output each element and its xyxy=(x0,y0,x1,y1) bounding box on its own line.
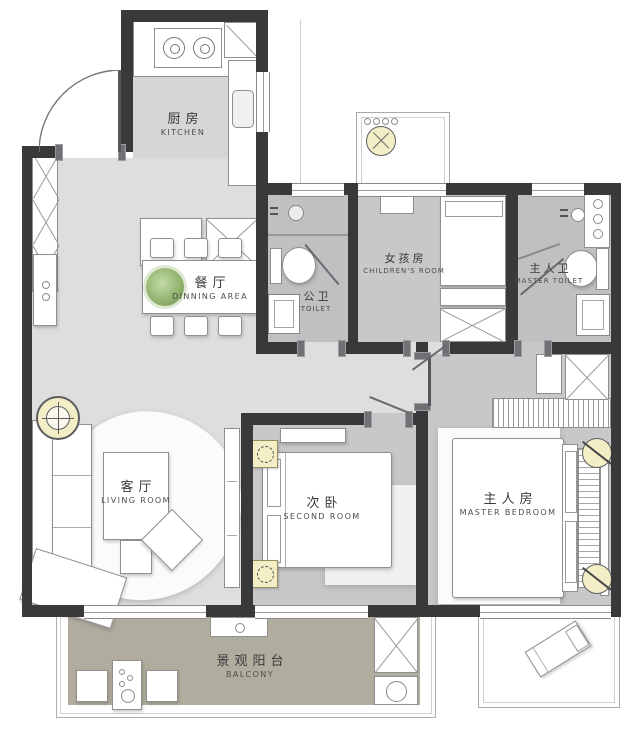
balcony-label: 景观阳台 BALCONY xyxy=(211,650,288,679)
door-opening xyxy=(518,342,546,354)
door-jamb xyxy=(403,340,411,357)
toilet-label: 公卫 TOILET xyxy=(301,288,332,313)
balcony-label-zh: 景观阳台 xyxy=(211,650,288,669)
door-jamb xyxy=(442,340,450,357)
slat-line xyxy=(533,648,549,672)
washbasin xyxy=(576,294,610,336)
laundry-cabinet xyxy=(374,617,418,673)
washbasin xyxy=(268,294,300,334)
x-pattern-line xyxy=(566,353,610,399)
living-balcony-window xyxy=(84,605,206,619)
bedside-lamp xyxy=(582,438,612,468)
balcony-stool xyxy=(146,670,178,702)
toilet-tank xyxy=(596,248,609,290)
closet-shelf xyxy=(536,354,562,394)
dining-chair xyxy=(184,238,208,258)
living-room-label: 客厅 LIVING ROOM xyxy=(101,476,171,505)
pillow-band xyxy=(562,444,578,592)
wall xyxy=(358,342,408,354)
cushion-line xyxy=(53,475,91,476)
planter-box xyxy=(210,617,268,637)
toilet-label-en: TOILET xyxy=(301,305,332,313)
decor-dot xyxy=(235,623,245,633)
kitchen-label-zh: 厨房 xyxy=(161,108,205,127)
wall xyxy=(435,605,480,617)
door-jamb xyxy=(338,340,346,357)
wall xyxy=(22,146,32,617)
children-bay-opening xyxy=(358,183,446,197)
burner-icon xyxy=(163,37,185,59)
teapot-icon xyxy=(121,689,135,703)
wall xyxy=(348,183,358,354)
pillow xyxy=(267,515,281,563)
dining-chair xyxy=(218,316,242,336)
wall xyxy=(611,183,621,617)
bedroom-bench xyxy=(280,428,346,443)
door-jamb xyxy=(514,340,522,357)
x-pattern-line xyxy=(375,616,420,673)
lamp-line xyxy=(58,402,59,434)
door-jamb xyxy=(405,411,413,428)
door-opening xyxy=(368,413,408,425)
closet-cabinet xyxy=(565,354,609,400)
wall xyxy=(256,183,268,354)
teacup-icon xyxy=(119,681,125,687)
wall xyxy=(444,342,506,354)
second-room-window xyxy=(255,605,368,619)
door-jamb xyxy=(297,340,305,357)
kitchen-label: 厨房 KITCHEN xyxy=(161,108,205,137)
tea-table xyxy=(112,660,142,710)
kitchen-window xyxy=(256,72,270,132)
wall xyxy=(22,605,84,617)
master-wardrobe xyxy=(492,398,611,428)
decor-dot xyxy=(391,118,398,125)
nightstand-lamp xyxy=(252,560,278,588)
bed-blanket xyxy=(440,288,506,306)
fold-line xyxy=(226,25,257,57)
entry-door-arc xyxy=(39,70,121,152)
toilet-tank xyxy=(270,248,282,284)
single-bed xyxy=(440,196,506,286)
dining-chair xyxy=(150,238,174,258)
decor-dot xyxy=(373,118,380,125)
floor-plan: 厨房 KITCHEN 餐厅 DINNING AREA 公卫 TOILET 女孩房… xyxy=(0,0,643,732)
kitchen-sink xyxy=(232,90,254,128)
faucet-icon xyxy=(560,209,568,211)
teacup-icon xyxy=(119,669,125,675)
cushion-line xyxy=(53,527,91,528)
master-bay-window-line xyxy=(480,605,611,619)
master-label-en: MASTER BEDROOM xyxy=(460,508,557,517)
x-pattern-line xyxy=(440,309,506,344)
bedside-lamp xyxy=(582,564,612,594)
door-jamb xyxy=(364,411,372,428)
faucet-icon xyxy=(270,207,278,209)
dining-chair xyxy=(184,316,208,336)
hallway-floor xyxy=(253,345,416,413)
dining-chair xyxy=(150,316,174,336)
door-opening xyxy=(302,342,340,354)
master-toilet-label-zh: 主人卫 xyxy=(515,260,584,276)
burner-icon xyxy=(193,37,215,59)
wall xyxy=(121,10,133,152)
mop-basin xyxy=(374,676,418,705)
dining-label-en: DINNING AREA xyxy=(172,292,248,301)
tv-cabinet xyxy=(224,428,240,588)
master-toilet-label: 主人卫 MASTER TOILET xyxy=(515,260,584,285)
storage-niche xyxy=(584,190,610,248)
hanging-chair-icon xyxy=(366,126,396,156)
second-label-en: SECOND ROOM xyxy=(283,512,360,521)
master-door-leaf xyxy=(428,356,431,406)
decor-dot xyxy=(42,293,50,301)
master-bedroom-label: 主人房 MASTER BEDROOM xyxy=(460,488,557,517)
decor-dot xyxy=(364,118,371,125)
pillow xyxy=(445,201,503,217)
decor-dot xyxy=(42,281,50,289)
wall xyxy=(241,413,253,617)
wall xyxy=(256,10,268,72)
pillow xyxy=(565,521,577,583)
second-room-label: 次卧 SECOND ROOM xyxy=(283,492,360,521)
children-wardrobe xyxy=(440,308,506,342)
toilet-partition xyxy=(268,234,348,236)
wall xyxy=(584,183,621,195)
second-label-zh: 次卧 xyxy=(283,492,360,511)
refrigerator xyxy=(224,22,257,58)
lightwell-line xyxy=(300,20,301,183)
ceiling-lamp-icon xyxy=(36,396,80,440)
gas-stove xyxy=(154,28,222,68)
children-room-label: 女孩房 CHILDREN'S ROOM xyxy=(363,250,445,275)
wall xyxy=(416,406,428,617)
toilet-label-zh: 公卫 xyxy=(301,288,332,304)
dining-label: 餐厅 DINNING AREA xyxy=(172,272,248,301)
faucet-icon xyxy=(560,215,568,217)
balcony-label-en: BALCONY xyxy=(211,670,288,679)
decor-dot xyxy=(593,199,603,209)
shelf-line xyxy=(227,481,237,482)
children-label-en: CHILDREN'S ROOM xyxy=(363,267,445,275)
decor-dot xyxy=(382,118,389,125)
shower-head-icon xyxy=(571,208,585,222)
pillow xyxy=(565,451,577,513)
dining-label-zh: 餐厅 xyxy=(172,272,248,291)
decor-dot xyxy=(593,229,603,239)
wall xyxy=(546,342,621,354)
faucet-icon xyxy=(270,213,278,215)
children-label-zh: 女孩房 xyxy=(363,250,445,266)
kitchen-label-en: KITCHEN xyxy=(161,128,205,137)
nightstand-lamp xyxy=(252,440,278,468)
decor-dot xyxy=(593,214,603,224)
master-toilet-window xyxy=(532,183,584,197)
wall xyxy=(446,183,532,195)
dining-chair xyxy=(218,238,242,258)
shelf-line xyxy=(227,535,237,536)
living-label-en: LIVING ROOM xyxy=(101,496,171,505)
master-bed xyxy=(452,438,564,598)
master-toilet-label-en: MASTER TOILET xyxy=(515,277,584,285)
master-label-zh: 主人房 xyxy=(460,488,557,507)
teacup-icon xyxy=(127,675,133,681)
sideboard xyxy=(33,254,57,326)
wall xyxy=(121,10,268,22)
door-jamb xyxy=(544,340,552,357)
living-label-zh: 客厅 xyxy=(101,476,171,495)
wall xyxy=(253,413,368,425)
toilet-window xyxy=(292,183,344,197)
corner-sink xyxy=(288,205,304,221)
basin-circle xyxy=(386,681,407,702)
wall xyxy=(256,342,302,354)
balcony-stool xyxy=(76,670,108,702)
